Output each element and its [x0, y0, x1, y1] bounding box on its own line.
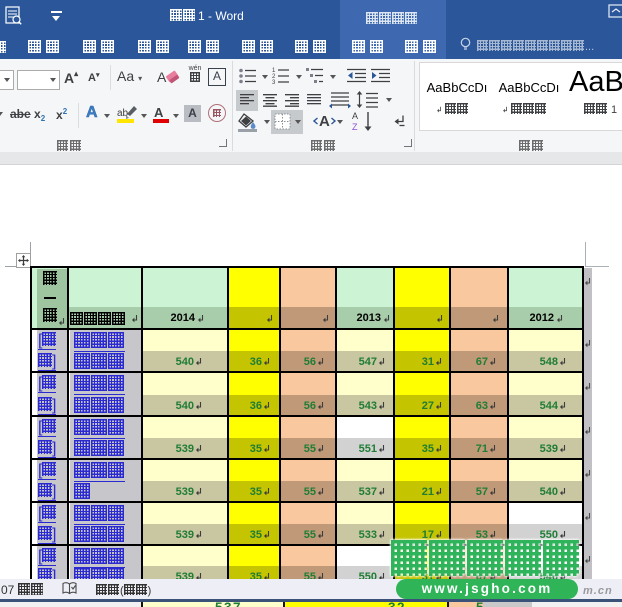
svg-text:A: A — [319, 113, 330, 130]
svg-text:A: A — [157, 69, 167, 85]
svg-text:3: 3 — [272, 80, 276, 85]
svg-text:A: A — [352, 111, 358, 121]
svg-text:Z: Z — [352, 122, 358, 132]
svg-text:A: A — [154, 105, 164, 120]
